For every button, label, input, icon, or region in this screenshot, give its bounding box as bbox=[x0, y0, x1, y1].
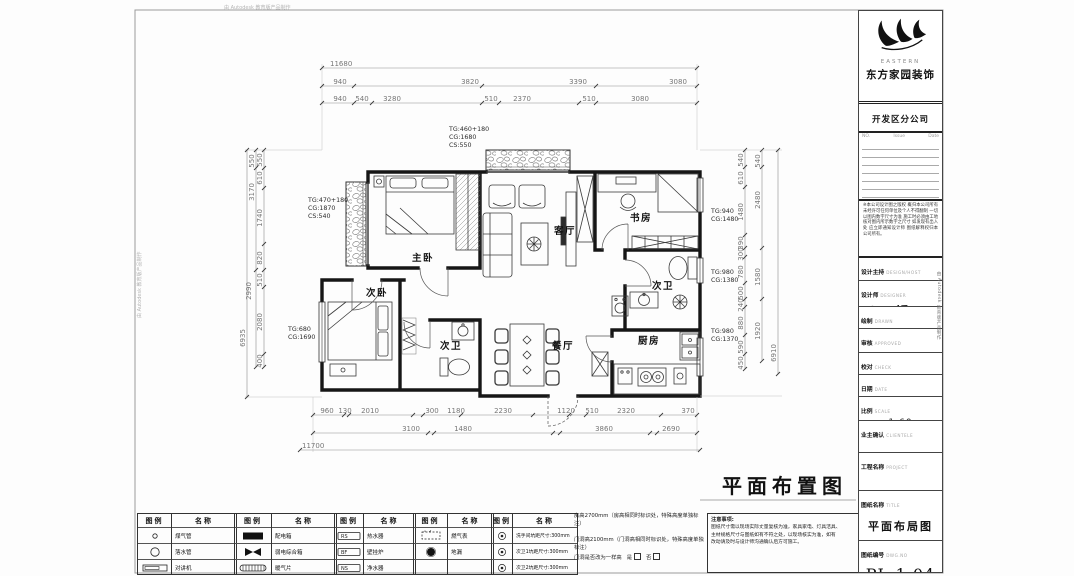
legend-header-icon: 图例 bbox=[235, 514, 271, 528]
furniture bbox=[328, 174, 700, 394]
svg-text:BF: BF bbox=[341, 550, 347, 556]
row-label: 审核 bbox=[861, 341, 873, 347]
walls bbox=[322, 172, 700, 396]
dining-chairs bbox=[495, 329, 559, 385]
notice-title: 注意事项: bbox=[711, 517, 734, 523]
legend-group-4: 图例 名称 燃气表 地漏 bbox=[413, 513, 494, 575]
annotation: CG:1370 bbox=[711, 336, 738, 343]
dim-bottom-total: 11700 bbox=[302, 442, 324, 450]
dim: 370 bbox=[681, 407, 694, 415]
no-label: 否 bbox=[646, 555, 651, 561]
notice-line: 主材规格尺寸与图纸如有不符之处，以现场核实为准，如有 bbox=[711, 532, 855, 539]
gas-meter-icon bbox=[414, 528, 447, 544]
row-drawing-number: 图纸编号DWG.NO PL-1.04 bbox=[859, 541, 942, 572]
legend-name: 煤气管 bbox=[172, 528, 236, 544]
legend-name bbox=[448, 560, 493, 575]
room-label-second: 次卧 bbox=[366, 287, 388, 299]
branch-name: 开发区分公司 bbox=[859, 107, 942, 133]
legend-name: 净水器 bbox=[364, 560, 415, 575]
logo-wordmark: EASTERN bbox=[859, 59, 942, 65]
room-label-study: 书房 bbox=[630, 212, 652, 224]
legend-name: 燃气表 bbox=[448, 528, 493, 544]
row-label: 比例 bbox=[861, 409, 873, 415]
row-label: 绘制 bbox=[861, 319, 873, 325]
legend-group-5: 图例 名称 洗手间坑距尺寸:300mm 次卫1坑距尺寸:300mm 次卫2坑距尺… bbox=[491, 513, 578, 575]
dim: 1740 bbox=[256, 209, 264, 227]
annotation: TG:680 bbox=[287, 326, 311, 333]
dim: 1480 bbox=[454, 425, 472, 433]
yes-label: 是 bbox=[627, 555, 632, 561]
title-block: EASTERN 东方家园装饰 开发区分公司 NO. Issue Date ※本公… bbox=[858, 10, 943, 573]
row-label: 设计师 bbox=[861, 293, 878, 299]
dim: 3820 bbox=[461, 78, 479, 86]
radiator-icon bbox=[235, 560, 271, 575]
annotation: CG:1480 bbox=[711, 216, 738, 223]
door-bath-left bbox=[404, 322, 430, 348]
dim: 940 bbox=[333, 95, 346, 103]
floor-drain-icon bbox=[414, 544, 447, 560]
gas-pipe-icon bbox=[138, 528, 171, 544]
dim: 3280 bbox=[383, 95, 401, 103]
dim-top-total: 11680 bbox=[330, 60, 352, 68]
study-desk bbox=[598, 174, 656, 211]
dim: 510 bbox=[484, 95, 497, 103]
legend-name: 配电箱 bbox=[272, 528, 336, 544]
row-approved: 审核APPROVED bbox=[859, 329, 942, 353]
dim: 510 bbox=[256, 273, 264, 286]
dim: 3080 bbox=[631, 95, 649, 103]
row-label-en: DRAWN bbox=[875, 319, 893, 324]
dim-right-total: 6910 bbox=[770, 344, 778, 362]
dim: 960 bbox=[320, 407, 333, 415]
rev-date-header: Date bbox=[928, 134, 939, 139]
coffee-table bbox=[521, 223, 548, 265]
window-bath-right bbox=[697, 258, 703, 283]
water-heater-icon: RS bbox=[335, 528, 363, 544]
dim: 540 bbox=[737, 153, 745, 166]
dining-table bbox=[510, 324, 544, 386]
dim: 400 bbox=[256, 354, 264, 367]
low-voltage-box-icon bbox=[235, 544, 271, 560]
master-bed bbox=[374, 176, 454, 234]
room-label-bath-right: 次卫 bbox=[652, 280, 674, 292]
door-master bbox=[420, 268, 448, 296]
hall-cabinet bbox=[577, 176, 593, 242]
room-label-bath-left: 次卫 bbox=[440, 340, 462, 352]
dim: 2370 bbox=[513, 95, 531, 103]
dim: 2230 bbox=[494, 407, 512, 415]
legend-header-name: 名称 bbox=[513, 514, 577, 528]
annotation: CG:1380 bbox=[711, 277, 738, 284]
dim: 540 bbox=[754, 154, 762, 167]
vanity-left bbox=[452, 322, 474, 340]
legend-name: 落水管 bbox=[172, 544, 236, 560]
dim: 300 bbox=[425, 407, 438, 415]
study-bookshelf bbox=[632, 236, 698, 249]
logo-section: EASTERN 东方家园装饰 bbox=[859, 11, 942, 104]
row-date: 日期DATE bbox=[859, 375, 942, 397]
row-drawing-title: 图纸名称TITLE 平面布局图 bbox=[859, 491, 942, 541]
svg-text:NS: NS bbox=[341, 566, 348, 572]
annotation: TG:980 bbox=[710, 269, 734, 276]
legend-name: 洗手间坑距尺寸:300mm bbox=[513, 528, 577, 544]
dim: 2320 bbox=[617, 407, 635, 415]
row-label: 日期 bbox=[861, 387, 873, 393]
revision-rows bbox=[862, 142, 939, 198]
downpipe-icon bbox=[138, 544, 171, 560]
living-sofa bbox=[483, 213, 512, 277]
dim: 2690 bbox=[662, 425, 680, 433]
door-question: 门洞是否改为一样高 是 否 bbox=[574, 553, 706, 563]
legend-group-3: 图例 RS BF NS 名称 热水器 壁挂炉 净水器 bbox=[334, 513, 416, 575]
legend-header-name: 名称 bbox=[272, 514, 336, 528]
dim: 2080 bbox=[256, 313, 264, 331]
row-project: 工程名称PROJECT bbox=[859, 453, 942, 491]
yes-checkbox[interactable] bbox=[634, 553, 641, 560]
row-check: 校对CHECK bbox=[859, 353, 942, 375]
legend-name: 对讲机 bbox=[172, 560, 236, 575]
dim: 3860 bbox=[595, 425, 613, 433]
legend-table: 图例 名称 煤气管 落水管 对讲机 图例 名称 配电箱 弱电综合箱 暖气片 图例 bbox=[137, 513, 855, 573]
dim: 610 bbox=[256, 171, 264, 184]
notice-line: 改动请及时与设计师沟通确认后方可施工。 bbox=[711, 539, 855, 546]
dim: 510 bbox=[585, 407, 598, 415]
row-design-host: 设计主持DESIGN/HOST bbox=[859, 258, 942, 281]
dim: 550 bbox=[256, 153, 264, 166]
row-client-confirm: 业主确认CLIENTELE bbox=[859, 421, 942, 453]
annotation: TG:460+180 bbox=[448, 126, 489, 133]
legend-group-1: 图例 名称 煤气管 落水管 对讲机 bbox=[137, 513, 237, 575]
second-bed bbox=[328, 302, 392, 376]
bay-window-master bbox=[346, 182, 368, 266]
window-bedroom2 bbox=[319, 302, 325, 362]
row-label: 设计主持 bbox=[861, 270, 884, 276]
intercom-icon bbox=[138, 560, 171, 575]
drawing-sheet: 由 Autodesk 教育版产品制作 由 Autodesk 教育版产品制作 bbox=[0, 0, 1074, 576]
annotation: TG:940 bbox=[710, 208, 734, 215]
row-label-en: PROJECT bbox=[886, 465, 908, 470]
distribution-box-icon bbox=[235, 528, 271, 544]
legend-header-name: 名称 bbox=[172, 514, 236, 528]
dim: 1580 bbox=[754, 268, 762, 286]
rev-no-header: NO. bbox=[862, 134, 870, 139]
row-scale: 比例SCALE 1:60 bbox=[859, 397, 942, 421]
row-label-en: APPROVED bbox=[875, 341, 902, 346]
row-label-en: SCALE bbox=[875, 409, 891, 414]
dim: 510 bbox=[582, 95, 595, 103]
toilet-left bbox=[440, 358, 470, 376]
legend-header-icon: 图例 bbox=[414, 514, 447, 528]
dim: 450 bbox=[737, 356, 745, 369]
toilet-right bbox=[669, 257, 697, 280]
revision-table: NO. Issue Date bbox=[859, 133, 942, 201]
legend-name: 次卫1坑距尺寸:300mm bbox=[513, 544, 577, 560]
row-drawn: 绘制DRAWN bbox=[859, 307, 942, 329]
plant bbox=[673, 295, 687, 309]
room-label-master: 主卧 bbox=[412, 252, 434, 264]
legend-name: 地漏 bbox=[448, 544, 493, 560]
row-label: 工程名称 bbox=[861, 465, 884, 471]
door-height-note: 门洞高2100mm（门洞高相同时标识处，特殊高度单独标注） bbox=[574, 537, 706, 553]
legend-name: 次卫2坑距尺寸:300mm bbox=[513, 560, 577, 575]
annotation: CG:1690 bbox=[288, 334, 315, 341]
watermark-top: 由 Autodesk 教育版产品制作 bbox=[224, 4, 291, 11]
notice-line: 图纸尺寸需以现场实际丈量复核为准，家具家电、灯具洁具、 bbox=[711, 524, 855, 531]
dim: 500 bbox=[737, 286, 745, 299]
no-checkbox[interactable] bbox=[653, 553, 660, 560]
sheet-title: 平面布置图 bbox=[722, 474, 847, 498]
door-question-label: 门洞是否改为一样高 bbox=[574, 555, 622, 561]
row-label-en: CLIENTELE bbox=[886, 433, 913, 438]
disclaimer: ※本公司设计图之版权 概归本公司所有 未经许可任何单位及个人不得翻制 一切以图内… bbox=[859, 201, 942, 258]
door-bath-right bbox=[625, 260, 651, 286]
dim: 1920 bbox=[754, 322, 762, 340]
pit-distance-icon bbox=[492, 544, 512, 560]
rev-issue-header: Issue bbox=[893, 134, 905, 139]
designer-signature: 杨丽娟 bbox=[867, 300, 941, 307]
annotation: CG:1680 bbox=[449, 134, 476, 141]
pit-distance-icon bbox=[492, 560, 512, 575]
dim: 550 bbox=[248, 154, 256, 167]
annotation: TG:470+180 bbox=[307, 197, 348, 204]
dim: 2480 bbox=[754, 191, 762, 209]
stove bbox=[638, 368, 666, 386]
annotation: TG:980 bbox=[710, 328, 734, 335]
legend-notes: 房高2700mm（房高相同时标识处，特殊高度单独标注） 门洞高2100mm（门洞… bbox=[574, 513, 706, 573]
row-label: 图纸编号 bbox=[861, 553, 884, 559]
vanity-right bbox=[630, 292, 658, 308]
legend-group-2: 图例 名称 配电箱 弱电综合箱 暖气片 bbox=[234, 513, 337, 575]
study-daybed bbox=[658, 174, 698, 212]
bay-window-living bbox=[486, 150, 570, 172]
legend-header-icon: 图例 bbox=[138, 514, 171, 528]
annotation: CS:550 bbox=[449, 142, 472, 149]
water-purifier-icon: NS bbox=[335, 560, 363, 575]
svg-text:RS: RS bbox=[341, 534, 348, 540]
row-label: 业主确认 bbox=[861, 433, 884, 439]
pit-distance-icon bbox=[492, 528, 512, 544]
room-label-kitchen: 厨房 bbox=[638, 335, 660, 347]
row-label-en: DWG.NO bbox=[886, 553, 907, 558]
legend-name: 热水器 bbox=[364, 528, 415, 544]
dim: 300 bbox=[737, 247, 745, 260]
row-label-en: DESIGNER bbox=[880, 293, 906, 298]
legend-header-name: 名称 bbox=[448, 514, 493, 528]
annotation: CS:540 bbox=[308, 213, 331, 220]
dim: 130 bbox=[338, 407, 351, 415]
dim: 880 bbox=[737, 316, 745, 329]
eastern-logo-icon bbox=[872, 15, 930, 57]
row-designer: 设计师DESIGNER 杨丽娟 bbox=[859, 281, 942, 307]
row-label: 图纸名称 bbox=[861, 503, 884, 509]
legend-header-icon: 图例 bbox=[335, 514, 363, 528]
door-study bbox=[602, 224, 628, 250]
dim: 940 bbox=[333, 78, 346, 86]
dim: 2010 bbox=[361, 407, 379, 415]
drawing-title-value: 平面布局图 bbox=[861, 518, 940, 534]
dim: 540 bbox=[355, 95, 368, 103]
row-label-en: DESIGN/HOST bbox=[886, 270, 921, 275]
dim: 3080 bbox=[669, 78, 687, 86]
dim: 2990 bbox=[245, 282, 253, 300]
dim: 240 bbox=[737, 298, 745, 311]
legend-name: 壁挂炉 bbox=[364, 544, 415, 560]
room-label-living: 客厅 bbox=[553, 225, 576, 237]
dim: 820 bbox=[256, 251, 264, 264]
row-label-en: CHECK bbox=[875, 365, 892, 370]
legend-header-name: 名称 bbox=[364, 514, 415, 528]
legend-empty bbox=[414, 560, 447, 575]
room-label-dining: 餐厅 bbox=[551, 340, 574, 352]
watermark-right: 由 Autodesk 教育版产品制作 bbox=[935, 271, 941, 340]
dim: 1180 bbox=[447, 407, 465, 415]
row-label-en: TITLE bbox=[886, 503, 900, 508]
room-height-note: 房高2700mm（房高相同时标识处，特殊高度单独标注） bbox=[574, 513, 706, 529]
kitchen-appliances bbox=[618, 368, 686, 384]
boiler-icon: BF bbox=[335, 544, 363, 560]
dim: 3100 bbox=[402, 425, 420, 433]
row-label-en: DATE bbox=[875, 387, 888, 392]
drawing-number-value: PL-1.04 bbox=[861, 565, 940, 572]
dim: 610 bbox=[737, 171, 745, 184]
row-label: 校对 bbox=[861, 365, 873, 371]
annotation: CG:1870 bbox=[308, 205, 335, 212]
company-name: 东方家园装饰 bbox=[859, 67, 942, 82]
legend-name: 弱电综合箱 bbox=[272, 544, 336, 560]
living-armchairs bbox=[489, 185, 545, 208]
dim: 3170 bbox=[248, 183, 256, 201]
notice-box: 注意事项: 图纸尺寸需以现场实际丈量复核为准，家具家电、灯具洁具、 主材规格尺寸… bbox=[707, 513, 859, 573]
dim-left-total: 6935 bbox=[239, 329, 247, 347]
watermark-left: 由 Autodesk 教育版产品制作 bbox=[136, 251, 143, 318]
legend-header-icon: 图例 bbox=[492, 514, 512, 528]
dim: 3390 bbox=[569, 78, 587, 86]
legend-name: 暖气片 bbox=[272, 560, 336, 575]
dim: 1120 bbox=[557, 407, 575, 415]
